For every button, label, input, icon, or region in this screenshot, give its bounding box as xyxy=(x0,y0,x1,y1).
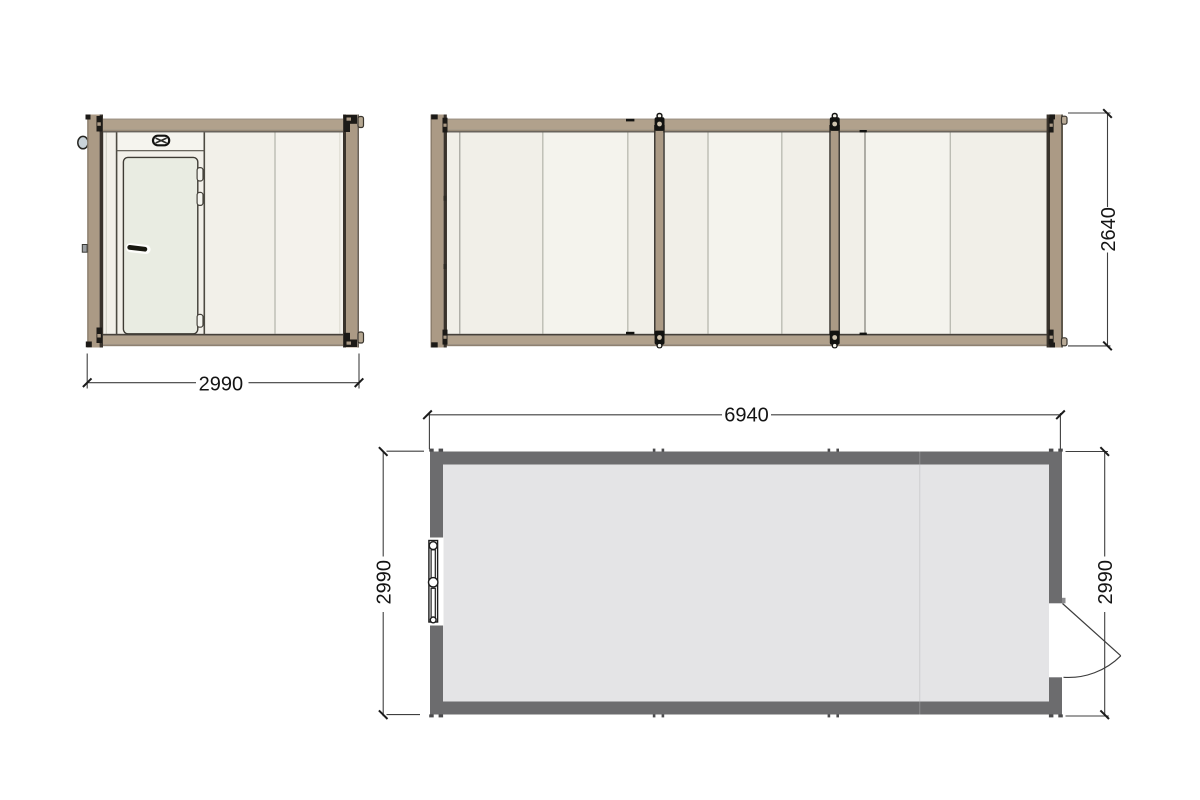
svg-text:2990: 2990 xyxy=(373,560,395,605)
svg-text:2640: 2640 xyxy=(1098,207,1120,252)
svg-text:2990: 2990 xyxy=(199,374,244,396)
svg-text:6940: 6940 xyxy=(724,405,769,427)
svg-text:2990: 2990 xyxy=(1095,560,1117,605)
